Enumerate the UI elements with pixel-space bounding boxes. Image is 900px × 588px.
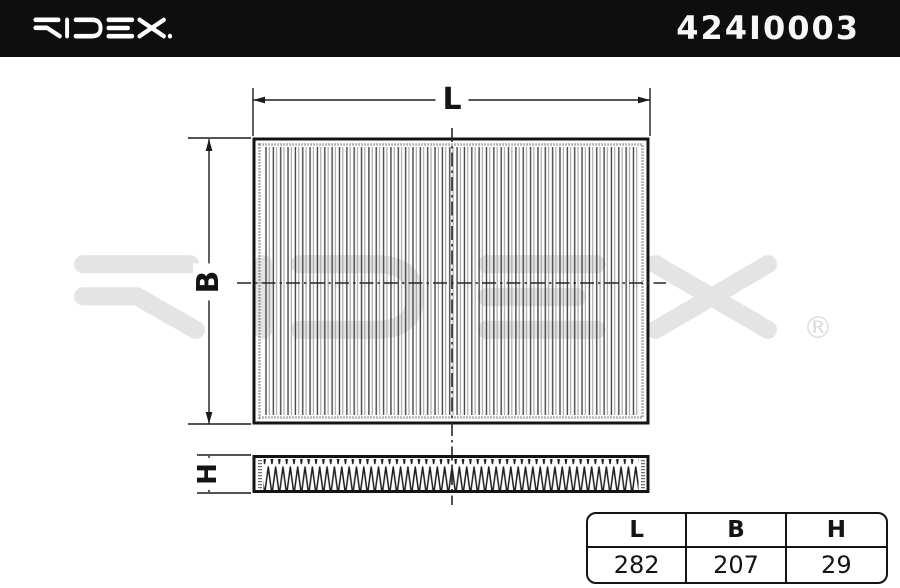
pleat-zigzag <box>264 459 639 490</box>
table-header-L: L <box>588 514 687 548</box>
arrowhead-down <box>206 412 213 424</box>
table-value-B: 207 <box>687 548 786 582</box>
dimensions-table: L B H 282 207 29 <box>586 512 888 584</box>
arrowhead-right <box>638 97 650 104</box>
dimension-label-H: H <box>194 458 222 490</box>
table-header-H: H <box>787 514 886 548</box>
arrowhead-up <box>206 139 213 151</box>
table-header-B: B <box>687 514 786 548</box>
dimension-label-L: L <box>435 84 468 116</box>
table-value-H: 29 <box>787 548 886 582</box>
pleat-lines <box>263 147 639 415</box>
product-image: 424I0003 ® <box>0 0 900 588</box>
arrowhead-left <box>253 97 265 104</box>
table-value-L: 282 <box>588 548 687 582</box>
filter-side-view <box>254 457 648 492</box>
dimension-label-B: B <box>193 264 225 301</box>
filter-top-view <box>254 139 648 423</box>
